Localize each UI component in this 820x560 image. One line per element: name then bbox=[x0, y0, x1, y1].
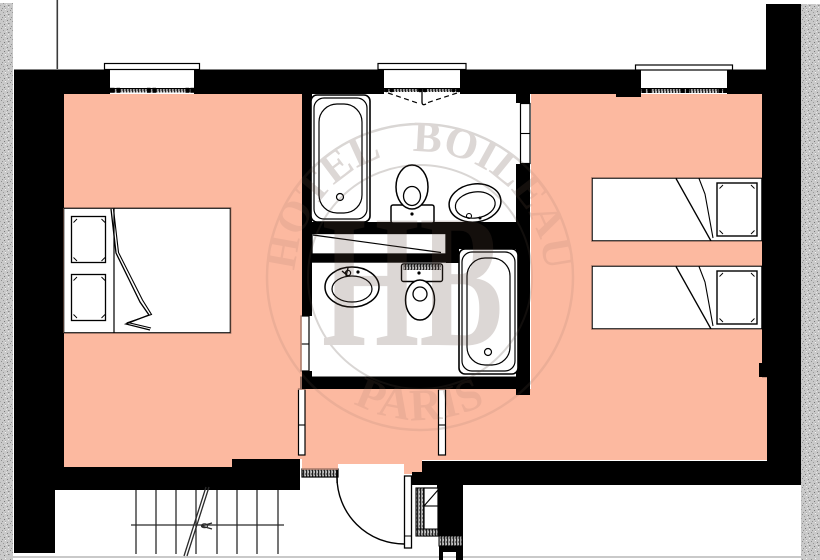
svg-text:HB: HB bbox=[322, 176, 503, 386]
